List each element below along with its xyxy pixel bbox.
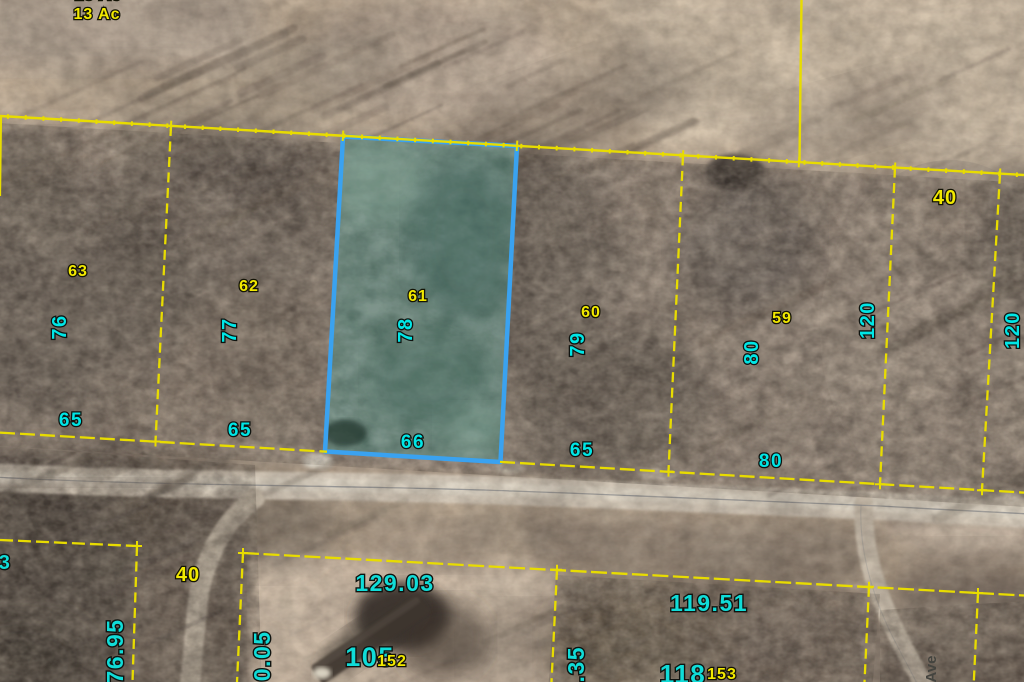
svg-text:76.95: 76.95 — [102, 618, 128, 682]
svg-text:60: 60 — [581, 304, 601, 321]
svg-text:50.05: 50.05 — [249, 630, 275, 682]
svg-text:59: 59 — [772, 310, 792, 327]
svg-text:40: 40 — [176, 564, 200, 586]
svg-text:13 Ac: 13 Ac — [74, 0, 121, 4]
svg-text:80: 80 — [741, 339, 763, 364]
svg-text:153: 153 — [707, 666, 737, 682]
svg-text:3: 3 — [0, 552, 11, 574]
svg-text:119.51: 119.51 — [670, 590, 748, 616]
svg-text:120: 120 — [857, 301, 879, 339]
svg-text:117.35: 117.35 — [563, 646, 589, 682]
svg-text:65: 65 — [570, 440, 594, 461]
svg-text:65: 65 — [228, 420, 252, 441]
svg-text:80: 80 — [759, 451, 783, 472]
svg-text:77: 77 — [219, 317, 241, 342]
svg-text:76: 76 — [49, 314, 71, 339]
svg-text:79: 79 — [567, 331, 589, 356]
svg-text:40: 40 — [933, 187, 957, 209]
svg-text:78: 78 — [395, 317, 417, 342]
svg-text:62: 62 — [239, 278, 259, 295]
svg-text:65: 65 — [59, 410, 83, 431]
svg-text:63: 63 — [68, 263, 88, 280]
svg-text:13 Ac: 13 Ac — [73, 6, 120, 23]
svg-text:118: 118 — [660, 659, 706, 682]
svg-text:129.03: 129.03 — [355, 570, 434, 596]
svg-text:120: 120 — [1002, 311, 1024, 349]
svg-text:61: 61 — [408, 288, 428, 305]
svg-text:66: 66 — [401, 432, 425, 453]
svg-text:152: 152 — [377, 653, 407, 670]
svg-text:Ave: Ave — [923, 656, 940, 682]
